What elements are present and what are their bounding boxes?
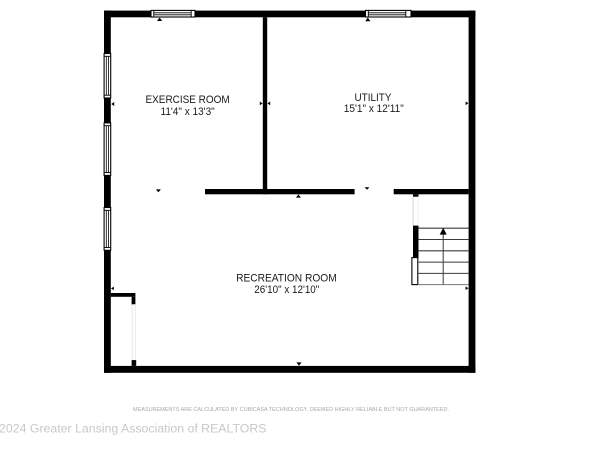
svg-text:2024 Greater Lansing Associati: 2024 Greater Lansing Association of REAL… xyxy=(0,421,267,435)
svg-text:EXERCISE ROOM: EXERCISE ROOM xyxy=(146,94,230,106)
svg-text:MEASUREMENTS ARE CALCULATED BY: MEASUREMENTS ARE CALCULATED BY CUBICASA … xyxy=(133,407,449,413)
svg-text:15'1" x 12'11": 15'1" x 12'11" xyxy=(344,103,404,115)
svg-text:UTILITY: UTILITY xyxy=(355,92,392,104)
svg-text:11'4" x 13'3": 11'4" x 13'3" xyxy=(161,106,215,118)
svg-text:RECREATION ROOM: RECREATION ROOM xyxy=(236,273,337,285)
svg-text:26'10" x 12'10": 26'10" x 12'10" xyxy=(254,284,319,296)
